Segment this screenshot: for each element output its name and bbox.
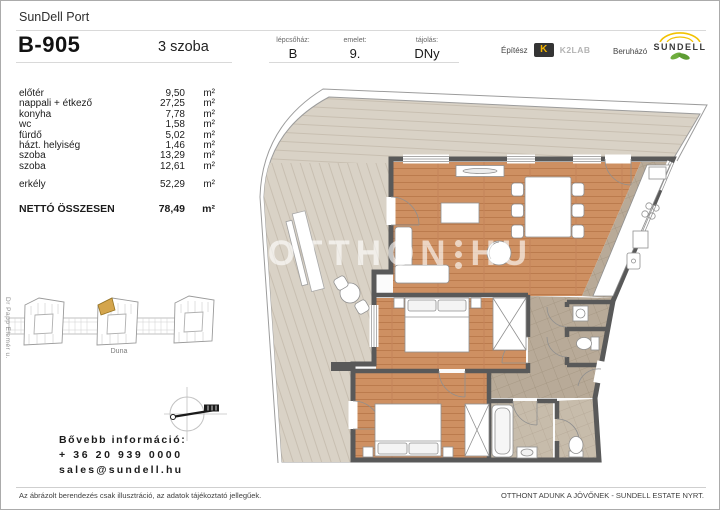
room-area: 52,29 [137,180,185,190]
room-unit: m² [185,162,215,172]
field-orientation-label: tájolás: [395,37,459,44]
footer-divider [16,487,706,488]
area-table: előtér9,50m² nappali + étkező27,25m² kon… [19,89,215,214]
bath-sink [517,447,537,458]
room-unit: m² [185,120,215,130]
developer-name: SUNDELL [651,42,709,52]
wardrobe-2 [465,404,489,456]
architect-block: Építész K K2LAB [501,43,591,57]
room-name: erkély [19,180,137,190]
field-staircase: lépcsőház: B [261,37,325,61]
toilet-2 [569,437,583,458]
room-name: konyha [19,110,137,120]
coffee-table [441,203,479,223]
street-label: Dr Papp Elemér u. [4,297,11,377]
sundell-arc-icon [657,31,703,42]
field-floor-value: 9. [323,46,387,61]
total-area: 78,49 [137,204,185,214]
net-total-row: NETTÓ ÖSSZESEN78,49m² [19,204,215,214]
fields-divider [269,62,459,63]
balcony-row: erkély52,29m² [19,180,215,190]
contact-block: Bővebb információ: + 36 20 939 0000 sale… [59,434,186,476]
k2lab-mark: K [540,45,547,55]
dining-table [525,177,571,237]
bed-1 [394,298,481,352]
company-slogan: OTTHONT ADUNK A JÖVŐNEK - SUNDELL ESTATE… [501,491,704,500]
developer-label: Beruházó [613,47,647,56]
room-name: wc [19,120,137,130]
field-staircase-value: B [261,46,325,61]
wardrobe-1 [493,298,526,350]
toilet-1 [577,337,600,350]
room-area: 1,58 [137,120,185,130]
area-row: házt. helyiség1,46m² [19,141,215,151]
left-divider [16,62,232,63]
area-row: konyha7,78m² [19,110,215,120]
header-divider [16,30,706,31]
area-row: szoba13,29m² [19,151,215,161]
field-staircase-label: lépcsőház: [261,37,325,44]
compass-needle [171,405,220,420]
room-area: 12,61 [137,162,185,172]
site-map [1,271,231,386]
total-unit: m² [185,204,215,214]
field-floor: emelet: 9. [323,37,387,61]
room-unit: m² [185,180,215,190]
floorplan-sheet: SunDell Port B-905 3 szoba lépcsőház: B … [0,0,720,510]
unit-id: B-905 [18,32,80,58]
sundell-logo: SUNDELL [651,31,709,61]
washing-machine [573,306,588,321]
contact-phone: + 36 20 939 0000 [59,449,186,461]
contact-email: sales@sundell.hu [59,464,186,476]
total-label: NETTÓ ÖSSZESEN [19,204,137,214]
contact-heading: Bővebb információ: [59,434,186,446]
k2lab-logo-icon: K [534,43,554,57]
bed-2 [363,404,453,457]
field-orientation-value: DNy [395,46,459,61]
river-label: Duna [97,348,141,355]
architect-label: Építész [501,46,528,55]
field-floor-label: emelet: [323,37,387,44]
room-count: 3 szoba [158,39,209,55]
area-row: szoba12,61m² [19,162,215,172]
room-name: szoba [19,162,137,172]
disclaimer-text: Az ábrázolt berendezés csak illusztráció… [19,491,261,500]
field-orientation: tájolás: DNy [395,37,459,61]
architect-name: K2LAB [560,45,591,55]
sundell-leaves-icon [668,52,692,61]
tv [463,169,497,174]
armchair [487,241,511,265]
area-row: wc1,58m² [19,120,215,130]
bathtub [492,405,513,457]
project-title: SunDell Port [19,10,89,24]
